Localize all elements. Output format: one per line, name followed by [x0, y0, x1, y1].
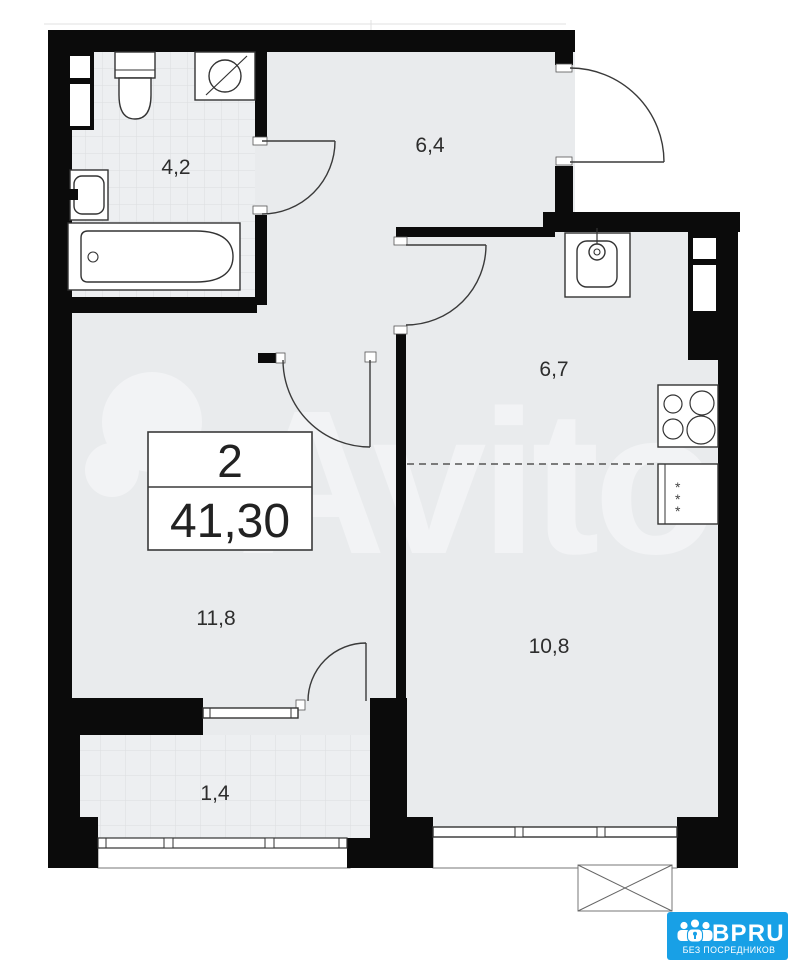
balcony-glazing	[98, 838, 347, 848]
watermark-dot-small	[85, 443, 139, 497]
floor-plan-screenshot: Avito	[0, 0, 788, 960]
toilet	[115, 52, 155, 119]
room-label-room: 10,8	[529, 635, 570, 658]
crossed-box	[578, 865, 672, 911]
room-label-balcony: 1,4	[200, 782, 230, 805]
people-lock-icon	[678, 919, 713, 942]
room-window	[433, 827, 677, 837]
unit-info-box: 2 41,30	[148, 432, 312, 550]
room-label-hallway: 6,4	[415, 134, 445, 157]
room-window-sill	[433, 837, 677, 868]
fridge: * * *	[658, 464, 718, 524]
living-room-balcony-window	[203, 708, 298, 718]
bathtub-drain	[88, 252, 98, 262]
entrance-door	[570, 68, 664, 162]
sink-faucet	[56, 189, 78, 200]
room-label-bathroom: 4,2	[161, 156, 190, 179]
logo-tagline-text: БЕЗ ПОСРЕДНИКОВ	[683, 945, 776, 955]
total-area: 41,30	[170, 495, 290, 548]
kitchen-sink	[565, 228, 630, 297]
room-label-kitchen: 6,7	[539, 358, 568, 381]
bathtub	[68, 223, 240, 290]
fridge-snowflake: *	[675, 503, 681, 519]
washing-machine	[195, 52, 255, 100]
bpru-logo: BPRU БЕЗ ПОСРЕДНИКОВ	[667, 912, 788, 960]
room-label-living-room: 11,8	[196, 607, 235, 630]
rooms-count: 2	[217, 435, 243, 487]
stove	[658, 385, 718, 447]
logo-brand-text: BPRU	[712, 920, 785, 947]
floor-plan: Avito	[0, 0, 788, 960]
balcony-sill	[98, 848, 350, 868]
